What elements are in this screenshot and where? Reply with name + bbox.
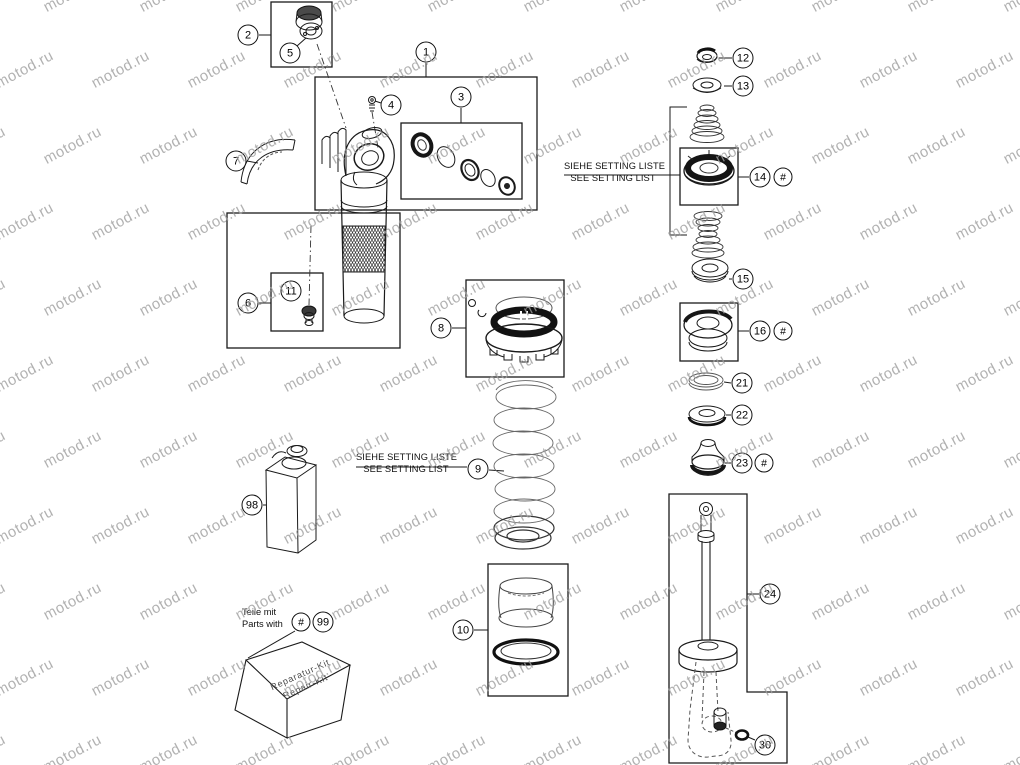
part-oil-can-98 [266, 446, 316, 554]
part-shock-body [322, 126, 394, 323]
callout-8: 8 [431, 318, 452, 339]
callout-hash: # [292, 613, 311, 632]
callout-9: 9 [468, 459, 489, 480]
callout-15: 15 [733, 269, 754, 290]
callout-hash: # [755, 454, 774, 473]
part-screw-11 [302, 306, 316, 326]
callout-3: 3 [451, 87, 472, 108]
callout-hash: # [774, 322, 793, 341]
part-piston-ring-16 [684, 312, 732, 351]
part-shim-stack-lower [692, 212, 724, 259]
part-oring-30 [736, 731, 748, 740]
box-part-10 [488, 564, 568, 696]
setting-note-shims: SIEHE SETTING LISTE SEE SETTING LIST [564, 161, 662, 184]
callout-21: 21 [732, 373, 753, 394]
part-washer-13 [693, 78, 721, 93]
diagram-line-art [0, 0, 1020, 765]
callout-24: 24 [760, 584, 781, 605]
part-ring-21 [689, 373, 723, 390]
part-compression-adjuster [296, 6, 322, 39]
callout-14: 14 [750, 167, 771, 188]
callout-16: 16 [750, 321, 771, 342]
callout-1: 1 [416, 42, 437, 63]
callout-7: 7 [226, 151, 247, 172]
part-bumper-10 [494, 578, 558, 664]
callout-10: 10 [453, 620, 474, 641]
callout-5: 5 [280, 43, 301, 64]
part-cap-12 [697, 49, 717, 62]
callout-11: 11 [281, 281, 302, 302]
parts-with-note: Teile mit Parts with [242, 606, 283, 630]
callout-22: 22 [732, 405, 753, 426]
part-seal-head-23 [692, 440, 724, 476]
callout-23: 23 [732, 453, 753, 474]
callout-30: 30 [755, 735, 776, 756]
part-preload-collar-8 [469, 297, 563, 362]
leader-lines [247, 35, 759, 740]
part-seal-kit-3 [409, 131, 517, 197]
part-spring-9 [493, 381, 556, 549]
parts-with-note-en: Parts with [242, 619, 283, 629]
callout-2: 2 [238, 25, 259, 46]
callout-12: 12 [733, 48, 754, 69]
part-shim-stack-upper [690, 105, 724, 143]
callout-4: 4 [381, 95, 402, 116]
setting-note-spring-de: SIEHE SETTING LISTE [356, 452, 457, 462]
callout-6: 6 [238, 293, 259, 314]
callout-99: 99 [313, 612, 334, 633]
setting-note-shims-de: SIEHE SETTING LISTE [564, 161, 665, 171]
setting-note-spring: SIEHE SETTING LISTE SEE SETTING LIST [356, 452, 456, 475]
box-part-24 [669, 494, 787, 763]
setting-note-shims-en: SEE SETTING LIST [570, 173, 655, 183]
part-screw-4 [369, 97, 376, 112]
parts-with-note-de: Teile mit [242, 607, 276, 617]
part-piston-14 [684, 150, 734, 185]
shock-absorber-parts-diagram: SIEHE SETTING LISTE SEE SETTING LIST SIE… [0, 0, 1020, 765]
callout-13: 13 [733, 76, 754, 97]
setting-note-spring-en: SEE SETTING LIST [363, 464, 448, 474]
part-washer-15 [692, 259, 728, 282]
part-shaft-24 [679, 503, 748, 758]
callout-hash: # [774, 168, 793, 187]
callout-98: 98 [242, 495, 263, 516]
part-washer-22 [689, 406, 725, 425]
